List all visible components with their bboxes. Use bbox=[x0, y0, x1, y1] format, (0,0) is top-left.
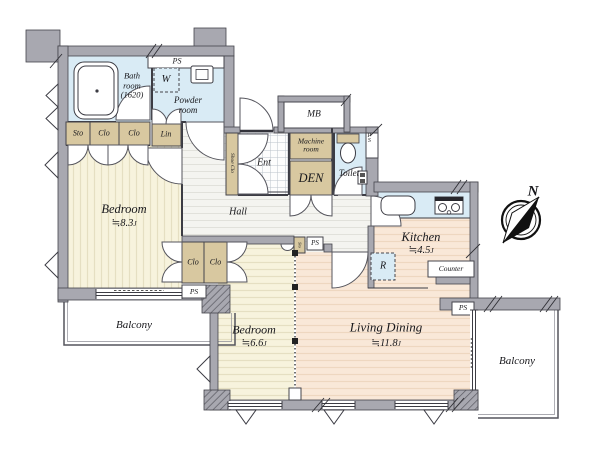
compass-north-icon bbox=[502, 197, 540, 243]
kitchen-sink-icon bbox=[381, 196, 415, 215]
closet-3 bbox=[182, 242, 204, 283]
closet-1 bbox=[90, 122, 119, 145]
shoe-closet bbox=[226, 133, 238, 195]
pipe-space-toilet bbox=[366, 133, 378, 158]
toilet-bowl-icon bbox=[341, 143, 356, 163]
front-door bbox=[240, 98, 273, 131]
pipe-space-mid bbox=[182, 285, 206, 298]
floorplan-canvas bbox=[0, 0, 600, 450]
pipe-space-hall bbox=[307, 237, 323, 250]
washer-space-icon bbox=[154, 68, 179, 92]
meter-box bbox=[284, 102, 344, 128]
floor-plan: PS Bath room (1620) W Powder room Sto Cl… bbox=[0, 0, 600, 450]
machine-room-box bbox=[290, 133, 332, 159]
powder-sink-icon bbox=[191, 66, 213, 83]
fridge-space-icon bbox=[371, 253, 395, 280]
closet-2 bbox=[119, 122, 150, 145]
storage-sto bbox=[66, 122, 90, 145]
toilet-tank-icon bbox=[337, 134, 359, 143]
den-box bbox=[290, 161, 332, 195]
linen-closet bbox=[152, 124, 181, 146]
counter-box bbox=[428, 261, 474, 277]
closet-4 bbox=[204, 242, 227, 283]
